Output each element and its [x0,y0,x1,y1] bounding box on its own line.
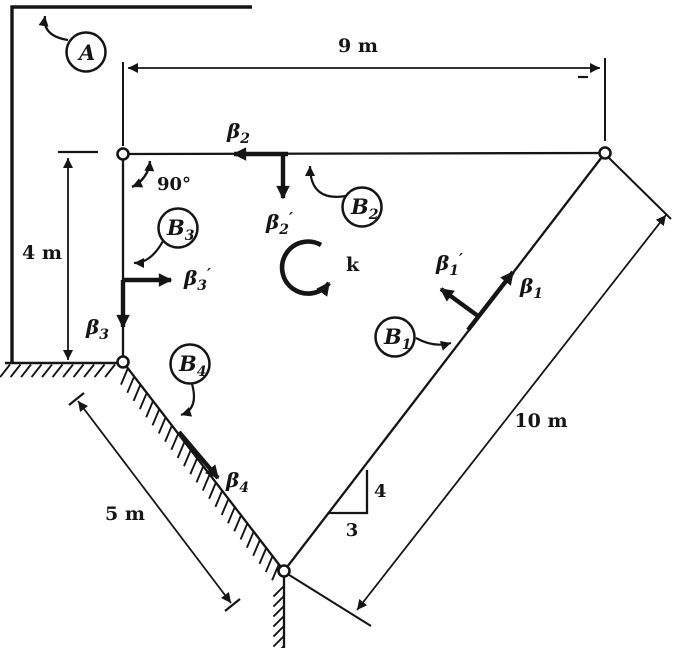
ground-hatch [0,365,115,378]
vector-beta1-arrow [468,272,513,330]
vector-beta1-label: β1 [519,274,543,302]
callout-b3-leader [134,241,163,263]
dimension-label-4m: 4 m [22,242,62,264]
support-hatch-bottom [273,586,284,648]
angle-arc [132,161,150,187]
callout-b4-leader [181,384,194,415]
callout-a-label: A [77,40,95,65]
dimension-top-span: 9 m [123,35,605,146]
vector-beta3-label: β3 [85,315,109,343]
incline-hatch [121,368,279,580]
angle-90: 90° [132,161,191,195]
pin-bottom-vertex [279,566,290,577]
pin-top-right [600,148,611,159]
extension-line-10m-top [607,156,671,219]
rotation-k-arrow [282,242,329,294]
dimension-label-10m: 10 m [514,410,567,432]
slope-rise-label: 4 [374,481,387,502]
callout-b2-leader [310,166,346,197]
extension-line-10m-bottom [286,573,371,626]
pin-top-left [118,149,129,160]
slope-run-label: 3 [346,520,359,541]
member-top [123,153,605,154]
callout-b1-leader [416,338,451,345]
vector-beta1-prime-arrow [441,289,478,316]
dimension-label-9m: 9 m [338,35,378,57]
rotation-k-label: k [346,254,360,276]
vector-beta4-label: β4 [225,468,249,496]
wall-body [0,7,252,377]
slope-triangle: 4 3 [328,470,387,541]
statics-diagram: 9 m 4 m 5 m 10 m 4 3 90° β2 β2′ [0,0,675,648]
tick-5m-top [69,393,84,405]
dimension-lower-right-link: 10 m [286,156,671,626]
vector-beta1-prime-label: β1′ [435,250,463,279]
callout-a-leader [45,16,68,40]
dimension-label-5m: 5 m [105,503,145,525]
angle-label: 90° [157,174,191,195]
vector-beta2-label: β2 [226,119,250,147]
figure-canvas: 9 m 4 m 5 m 10 m 4 3 90° β2 β2′ [0,0,675,648]
callouts: A B2 B3 B1 B4 [45,16,451,415]
vector-beta3-prime-label: β3′ [183,265,211,294]
unit-vectors: β2 β2′ β3′ β3 β1 β1′ β4 k [85,119,543,496]
dimension-lower-left-link: 5 m [69,393,240,611]
support-surfaces [121,368,284,648]
tick-5m-bottom [225,599,240,611]
pin-bottom-left [118,357,129,368]
dimension-line-5m [78,401,231,603]
vector-beta4-arrow [179,432,218,478]
member-lower-right [284,153,605,571]
wall-outline [12,7,252,362]
vector-beta2-prime-label: β2′ [265,209,293,238]
